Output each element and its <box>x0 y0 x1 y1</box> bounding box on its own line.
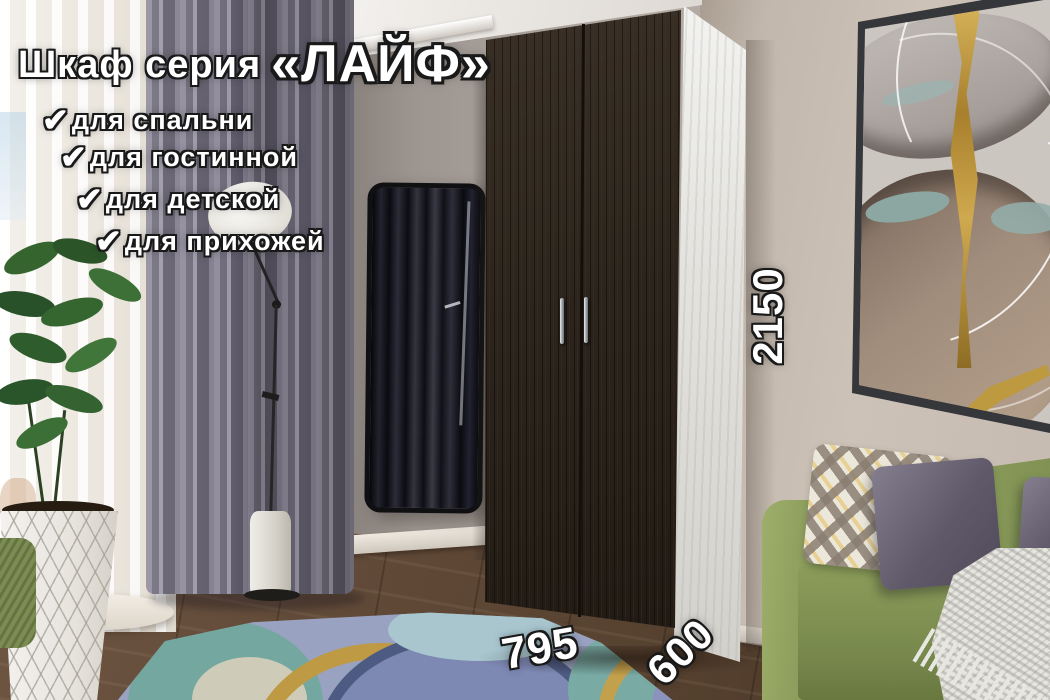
title-prefix: Шкаф серия <box>18 44 261 86</box>
plant-leaf <box>60 331 121 379</box>
knit-pouf <box>0 538 36 648</box>
feature-label: для детской <box>106 184 280 215</box>
mirror-reflection <box>459 201 470 425</box>
feature-item-hallway: ✔ для прихожей <box>95 225 325 257</box>
mirror-reflection <box>444 301 460 309</box>
lamp-base <box>250 511 291 599</box>
lamp-base-disc <box>244 589 300 601</box>
wardrobe <box>478 0 753 670</box>
room-product-photo: Шкаф серия«ЛАЙФ» ✔ для спальни ✔ для гос… <box>0 0 1050 700</box>
plant-leaf <box>38 292 106 333</box>
check-icon: ✔ <box>42 104 70 136</box>
product-title: Шкаф серия«ЛАЙФ» <box>18 34 491 94</box>
plant-leaf <box>6 326 71 369</box>
window-sky <box>0 112 26 220</box>
dimension-height-label: 2150 <box>744 254 792 378</box>
painting-canvas <box>843 0 1050 440</box>
check-icon: ✔ <box>95 225 123 257</box>
feature-label: для спальни <box>72 105 254 136</box>
plant-stem <box>26 390 46 509</box>
check-icon: ✔ <box>76 183 104 215</box>
door-handle-right <box>584 297 588 343</box>
door-handle-left <box>560 298 564 344</box>
feature-label: для прихожей <box>125 226 325 257</box>
feature-item-kids-room: ✔ для детской <box>76 183 280 215</box>
feature-label: для гостинной <box>90 142 298 173</box>
wall-mirror <box>364 182 485 513</box>
potted-plant <box>0 240 160 700</box>
series-name: «ЛАЙФ» <box>271 35 491 93</box>
sofa <box>762 438 1050 700</box>
feature-item-bedroom: ✔ для спальни <box>42 104 253 136</box>
wall-painting-frame <box>843 0 1050 440</box>
feature-item-living-room: ✔ для гостинной <box>60 141 298 173</box>
check-icon: ✔ <box>60 141 88 173</box>
plant-leaf <box>42 379 106 418</box>
